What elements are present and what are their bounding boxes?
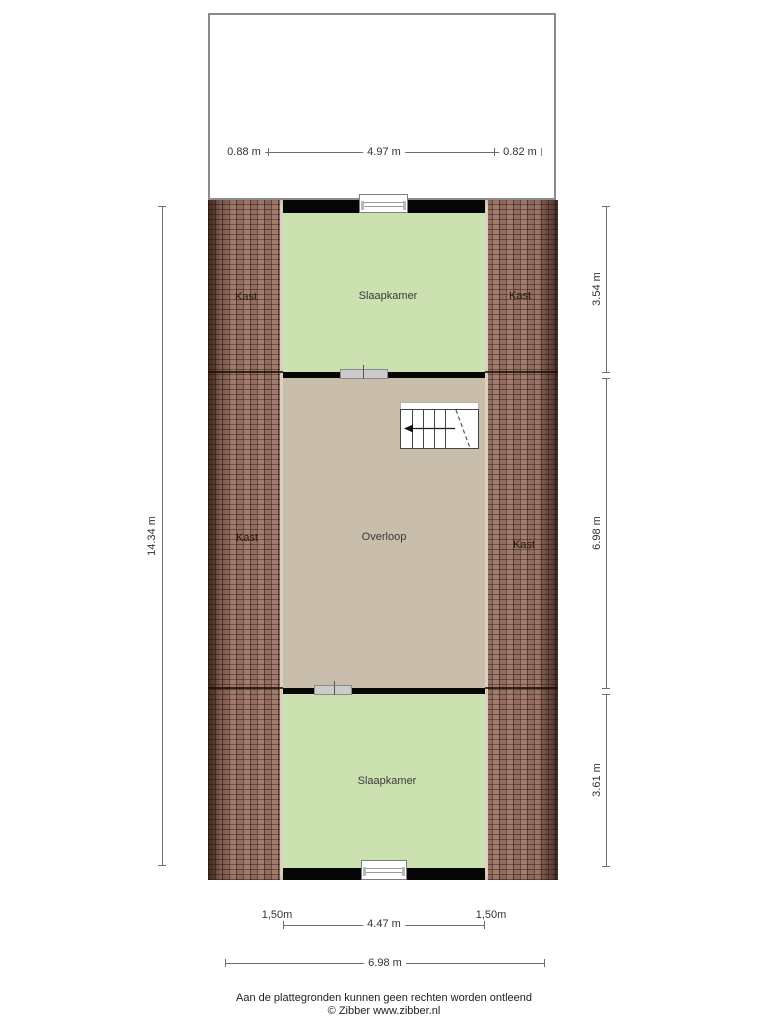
label-kast-top-right: Kast xyxy=(509,290,531,302)
roof-outline xyxy=(208,13,556,200)
room-slaapkamer-bottom xyxy=(283,694,485,880)
label-slaapkamer-bottom: Slaapkamer xyxy=(358,775,417,787)
label-kast-top-left: Kast xyxy=(235,291,257,303)
label-kast-mid-right: Kast xyxy=(513,539,535,551)
window-frame-cap xyxy=(361,201,364,210)
dim-tick xyxy=(158,865,166,866)
window-frame-cap xyxy=(402,867,405,876)
hatch-wall-line xyxy=(208,687,283,689)
window-frame-cap xyxy=(403,201,406,210)
label-kast-mid-left: Kast xyxy=(236,532,258,544)
footer-copyright: © Zibber www.zibber.nl xyxy=(328,1005,441,1017)
dim-tick xyxy=(602,206,610,207)
dim-tick xyxy=(484,921,485,929)
dim-tick xyxy=(544,959,545,967)
dim-right-top-label: 3.54 m xyxy=(591,268,603,310)
dim-tick xyxy=(602,694,610,695)
label-overloop: Overloop xyxy=(362,531,407,543)
dim-tick xyxy=(602,378,610,379)
dim-bottom-inner-left-label: 1,50m xyxy=(262,909,293,921)
dim-roof-center-label: 4.97 m xyxy=(363,146,405,158)
door-handle-mark xyxy=(363,365,364,379)
window-pane xyxy=(362,202,405,207)
dim-tick xyxy=(602,688,610,689)
label-slaapkamer-top: Slaapkamer xyxy=(359,290,418,302)
hatch-wall-line xyxy=(485,687,558,689)
dim-bottom-total-label: 6.98 m xyxy=(364,957,406,969)
dim-tick xyxy=(225,959,226,967)
dim-right-middle-line xyxy=(606,378,607,688)
dim-tick xyxy=(494,148,495,156)
dim-bottom-inner-right-label: 1,50m xyxy=(476,909,507,921)
footer-disclaimer: Aan de plattegronden kunnen geen rechten… xyxy=(236,992,532,1004)
dim-left-total-label: 14.34 m xyxy=(146,512,158,560)
dim-right-top-line xyxy=(606,206,607,372)
window-pane xyxy=(364,868,404,873)
window-bottom xyxy=(361,860,407,880)
dim-tick xyxy=(283,921,284,929)
door-handle-mark xyxy=(334,681,335,695)
door-slaapkamer-top xyxy=(340,369,388,379)
staircase xyxy=(400,409,479,449)
dim-roof-right-label: 0.82 m xyxy=(499,146,541,158)
dim-right-bottom-line xyxy=(606,694,607,866)
dim-tick xyxy=(602,372,610,373)
dim-tick xyxy=(602,866,610,867)
hatch-wall-line xyxy=(208,371,283,373)
hatch-wall-line xyxy=(485,371,558,373)
dim-tick xyxy=(158,206,166,207)
floorplan-page: 0.88 m 4.97 m 0.82 m xyxy=(0,0,768,1024)
door-slaapkamer-bottom xyxy=(314,685,352,695)
dim-left-line xyxy=(162,206,163,866)
dim-right-bottom-label: 3.61 m xyxy=(591,759,603,801)
dim-tick xyxy=(268,148,269,156)
window-top xyxy=(359,194,408,213)
dim-right-middle-label: 6.98 m xyxy=(591,512,603,554)
window-frame-cap xyxy=(363,867,366,876)
room-slaapkamer-top xyxy=(283,200,485,372)
dim-tick xyxy=(541,148,542,156)
dim-roof-left-label: 0.88 m xyxy=(223,146,265,158)
dim-bottom-inner-center-label: 4.47 m xyxy=(363,918,405,930)
